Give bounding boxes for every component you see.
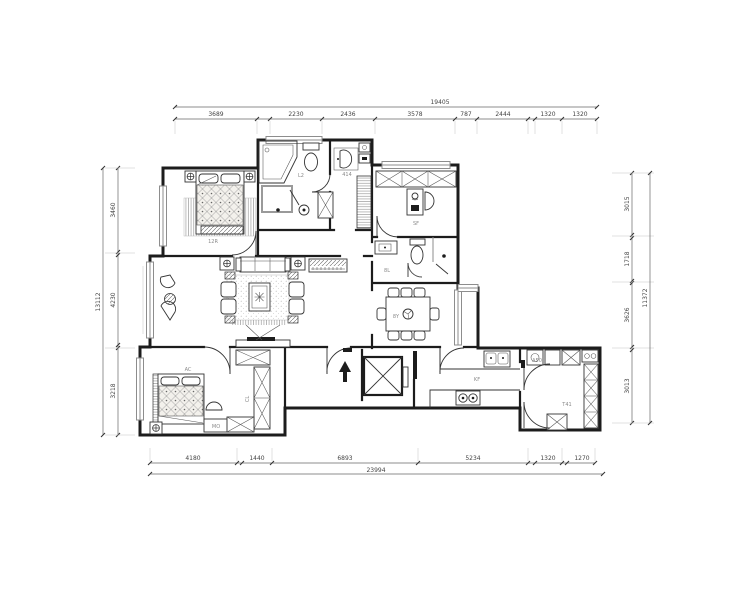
side-table-lamp-icon <box>220 257 234 270</box>
piano-icon <box>309 259 347 272</box>
side-table-lamp-icon <box>291 257 305 270</box>
window <box>458 285 478 292</box>
room-label-bedroom: 12R <box>208 239 218 245</box>
toilet-icon <box>303 143 319 171</box>
bathtub-icon <box>259 141 297 183</box>
room-study: SF <box>376 171 456 227</box>
window <box>455 290 462 345</box>
bed-icon <box>196 171 244 234</box>
window <box>382 162 450 169</box>
rug-fringe <box>232 320 286 325</box>
corner-table <box>288 272 298 279</box>
desk-icon <box>407 189 423 215</box>
shower-door <box>436 264 448 274</box>
dim-label: 3013 <box>624 378 631 393</box>
storage-xbox <box>562 350 580 365</box>
room-label-master: AC <box>185 367 192 373</box>
dim-label: 787 <box>460 111 472 118</box>
floor-plan-canvas: 19405 3689 2230 2436 3578 787 2444 1320 … <box>0 0 740 592</box>
duct-shaft <box>318 192 333 218</box>
dim-label: 1320 <box>540 455 555 462</box>
corner-table <box>288 316 298 323</box>
room-kitchen: KF <box>413 348 520 408</box>
bench-icon: MO <box>204 419 228 432</box>
dim-label: 2436 <box>340 111 355 118</box>
door-arc <box>312 174 330 192</box>
window <box>143 262 154 338</box>
chair-icon <box>425 192 434 210</box>
dimension-right: 3015 1718 3626 3013 11372 <box>612 171 654 425</box>
wardrobe-xbox <box>376 171 456 187</box>
tv-stand-icon <box>236 325 290 347</box>
cooktop-icon <box>456 391 480 405</box>
door-arc <box>377 216 398 237</box>
room-bath2: 8L <box>375 237 448 274</box>
dim-right-total: 11372 <box>642 288 649 307</box>
dim-label: 2230 <box>288 111 303 118</box>
door-arc <box>524 402 550 428</box>
nightstand-lamp-icon <box>185 171 196 182</box>
dim-label: 1440 <box>249 455 264 462</box>
room-dining: 8Y <box>377 288 439 340</box>
dim-label: 1320 <box>572 111 587 118</box>
water-heater-icon <box>582 350 598 362</box>
room-label-cloak: 414 <box>342 172 352 178</box>
nightstand-lamp-icon <box>150 422 162 434</box>
dim-left-total: 13112 <box>95 292 102 311</box>
dim-top-total: 19405 <box>430 99 449 106</box>
corner-table <box>225 272 235 279</box>
wardrobe-hatched <box>357 176 371 228</box>
elevator-shaft <box>364 357 408 395</box>
dim-label: 6893 <box>337 455 352 462</box>
fixture-box <box>359 143 370 163</box>
dim-label: 4180 <box>185 455 200 462</box>
nightstand-lamp-icon <box>244 171 255 182</box>
dim-label: 4230 <box>110 292 117 307</box>
cabinet <box>545 350 560 365</box>
appliance-label: A50 <box>532 358 542 364</box>
dim-label: 1320 <box>540 111 555 118</box>
floor-drain-icon <box>442 254 446 258</box>
dimension-top: 19405 3689 2230 2436 3578 787 2444 1320 … <box>173 99 599 134</box>
room-living <box>160 257 347 347</box>
tall-cabinet-xbox <box>584 364 598 428</box>
floor-drain-icon <box>299 205 309 215</box>
dim-label: 5234 <box>465 455 480 462</box>
dim-label: 3460 <box>110 202 117 217</box>
room-label-dining: 8Y <box>393 314 400 320</box>
bench-label: MO <box>212 424 220 430</box>
room-utility: T41 A50 <box>527 350 598 430</box>
door-leaf <box>413 351 417 379</box>
wardrobe-xbox <box>227 350 270 432</box>
window <box>266 137 322 144</box>
entry-arrow-icon <box>339 361 351 382</box>
door-arc <box>440 348 464 374</box>
dimension-left: 13112 3460 4230 3218 <box>95 166 135 437</box>
shower-icon <box>262 186 299 212</box>
window <box>137 358 144 420</box>
vanity-basin-icon <box>334 148 358 170</box>
dim-label: 3218 <box>110 383 117 398</box>
room-entry <box>339 357 408 395</box>
dim-label: 3626 <box>624 307 631 322</box>
room-label-kitchen: KF <box>474 377 480 383</box>
chair-icon <box>206 402 222 410</box>
room-bath: L2 <box>259 141 333 218</box>
floor-plan-svg: 19405 3689 2230 2436 3578 787 2444 1320 … <box>0 0 740 592</box>
door-arc <box>204 347 230 374</box>
coffee-table-icon <box>249 283 270 311</box>
dim-label: 1270 <box>574 455 589 462</box>
dim-label: 3015 <box>624 196 631 211</box>
dim-label: 3578 <box>407 111 422 118</box>
room-bedroom: 12R <box>184 171 256 245</box>
room-label-study: SF <box>413 221 419 227</box>
toilet-icon <box>410 239 425 264</box>
dimension-bottom: 4180 1440 6893 5234 1320 1270 23994 <box>148 448 605 476</box>
closet-label: CL <box>245 396 251 402</box>
room-label-bath2: 8L <box>384 268 390 274</box>
bay-table-icon <box>165 294 176 305</box>
room-master: MO CL AC <box>150 350 270 434</box>
room-cloak: 414 <box>334 143 371 228</box>
sofa-icon <box>236 257 290 272</box>
dim-label: 2444 <box>495 111 510 118</box>
room-label-utility: T41 <box>561 402 571 408</box>
dim-label: 1718 <box>624 251 631 266</box>
dim-label: 3689 <box>208 111 223 118</box>
sink-icon <box>375 241 397 254</box>
dim-bottom-total: 23994 <box>366 467 385 474</box>
master-bed-icon <box>153 374 204 424</box>
room-label-bath: L2 <box>298 173 304 179</box>
window <box>160 186 167 246</box>
floor-drain-icon <box>276 208 280 212</box>
kitchen-sink-icon <box>484 351 510 367</box>
